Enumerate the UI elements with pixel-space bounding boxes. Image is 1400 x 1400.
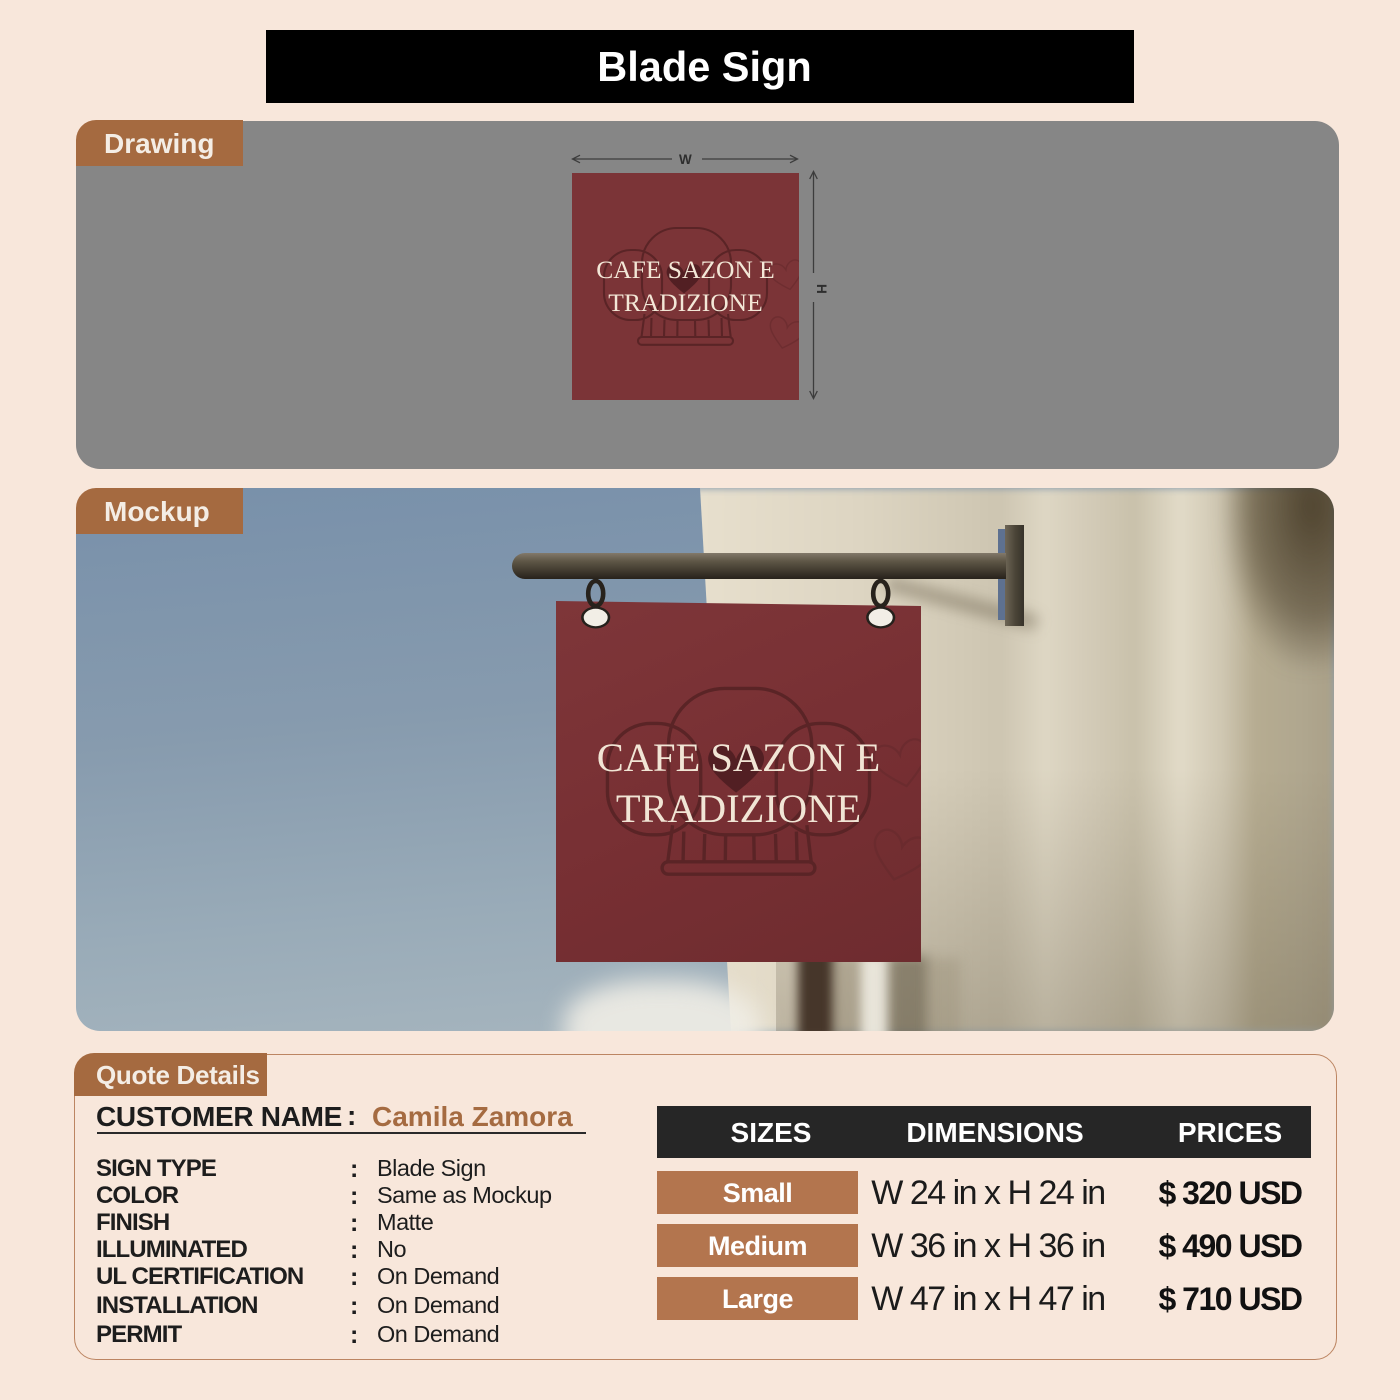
svg-text:H: H xyxy=(814,284,829,294)
svg-text:W: W xyxy=(679,152,692,167)
